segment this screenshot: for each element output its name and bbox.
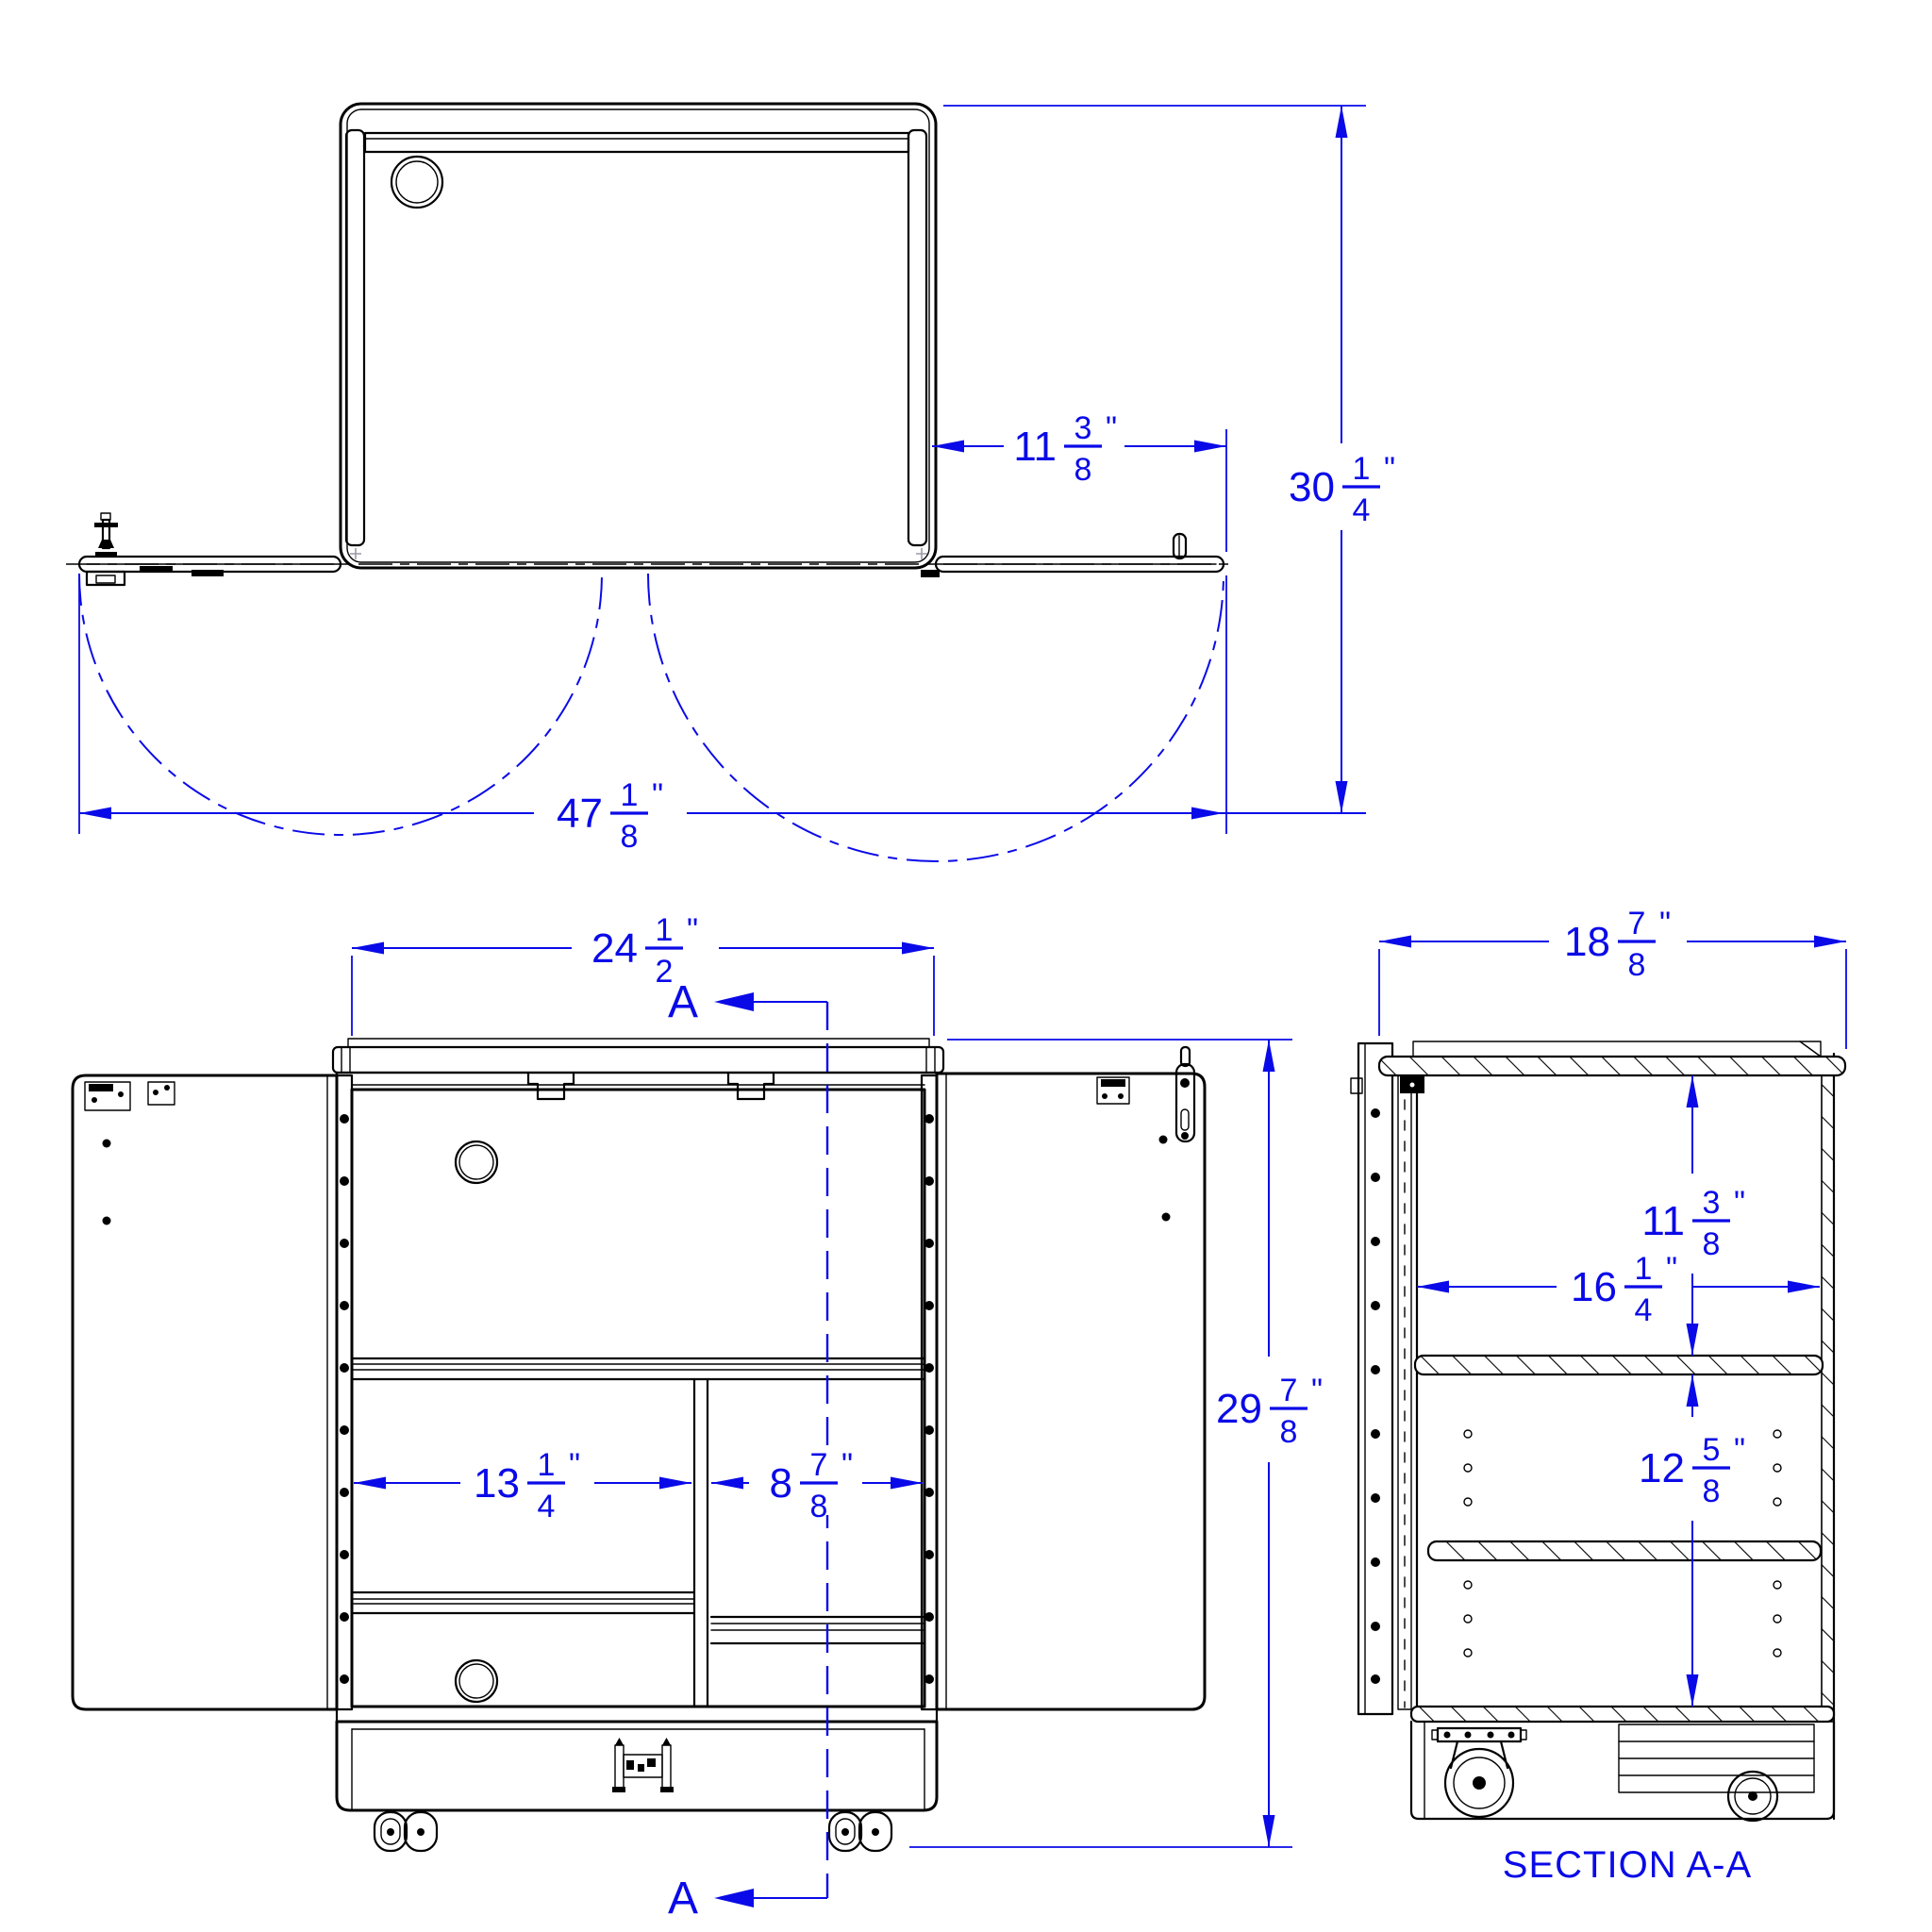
section-letter-bottom: A [668, 1874, 698, 1924]
svg-text:1: 1 [1635, 1251, 1653, 1287]
section-view: 18 7 8 " 11 3 8 " [1351, 906, 1846, 1886]
section-hinge-strip [1398, 1075, 1424, 1709]
svg-text:": " [687, 912, 698, 948]
front-right-door [937, 1047, 1205, 1709]
svg-text:8: 8 [770, 1460, 792, 1507]
svg-text:7: 7 [1280, 1373, 1298, 1408]
top-view-right-latch-pin [1174, 534, 1186, 558]
svg-text:47: 47 [557, 791, 603, 837]
dim-door-open-width: 11 3 8 " [932, 410, 1226, 834]
top-view-corner-marks [350, 548, 927, 559]
svg-text:13: 13 [474, 1460, 520, 1507]
svg-text:8: 8 [810, 1489, 828, 1524]
top-view-right-door-open [921, 557, 1224, 577]
section-lower-shelf [1428, 1541, 1821, 1560]
svg-text:": " [1311, 1373, 1323, 1408]
svg-text:1: 1 [538, 1447, 556, 1483]
dim-label-lower-compartment-height: 12 5 8 " [1632, 1432, 1755, 1509]
section-letter-top: A [668, 977, 698, 1027]
svg-text:": " [652, 777, 663, 813]
front-left-door [73, 1075, 337, 1709]
dim-right-compartment: 8 7 8 " [711, 1447, 923, 1524]
section-swivel-caster [1432, 1728, 1526, 1817]
front-left-caster [375, 1812, 437, 1851]
section-walls [1417, 1054, 1834, 1819]
dim-cabinet-height: 29 7 8 " [909, 1040, 1332, 1847]
svg-text:1: 1 [656, 912, 674, 948]
dim-label-cabinet-height: 29 7 8 " [1209, 1373, 1332, 1450]
dim-label-overall-depth: 30 1 4 " [1282, 451, 1405, 528]
svg-text:18: 18 [1564, 919, 1610, 965]
svg-text:30: 30 [1289, 464, 1335, 510]
svg-text:12: 12 [1639, 1445, 1685, 1491]
svg-text:11: 11 [1013, 424, 1057, 470]
dim-cabinet-depth: 18 7 8 " [1379, 906, 1846, 1049]
top-view-cabinet-outline [341, 104, 936, 568]
svg-text:": " [1659, 906, 1671, 941]
dim-label-door-open-width: 11 3 8 " [1004, 410, 1124, 488]
svg-text:": " [1734, 1185, 1745, 1221]
drawing-sheet: 11 3 8 " 30 1 4 " [0, 0, 1932, 1932]
svg-text:8: 8 [1703, 1226, 1721, 1262]
front-right-caster [829, 1812, 891, 1851]
svg-text:8: 8 [1280, 1414, 1298, 1450]
svg-text:8: 8 [1074, 452, 1092, 488]
svg-text:29: 29 [1216, 1386, 1262, 1432]
front-left-hinge-strip [337, 1075, 352, 1709]
front-base [337, 1722, 937, 1851]
svg-text:": " [1384, 451, 1395, 487]
dim-label-overall-width: 47 1 8 " [550, 777, 671, 855]
svg-text:1: 1 [621, 777, 639, 813]
front-cabinet-body [333, 1039, 943, 1722]
svg-text:8: 8 [1703, 1474, 1721, 1509]
section-base [1411, 1722, 1834, 1821]
svg-text:1: 1 [1353, 451, 1371, 487]
section-worktop [1379, 1041, 1845, 1075]
section-view-title: SECTION A-A [1503, 1844, 1752, 1886]
svg-text:4: 4 [538, 1489, 556, 1524]
dim-label-cabinet-depth: 18 7 8 " [1557, 906, 1678, 983]
svg-text:": " [1734, 1432, 1745, 1468]
svg-text:7: 7 [810, 1447, 828, 1483]
svg-text:": " [841, 1447, 853, 1483]
top-view-grommet-hole [391, 157, 442, 208]
svg-text:8: 8 [1628, 947, 1646, 983]
svg-text:11: 11 [1641, 1198, 1685, 1244]
svg-text:7: 7 [1628, 906, 1646, 941]
svg-text:4: 4 [1353, 492, 1371, 528]
top-view: 11 3 8 " 30 1 4 " [66, 104, 1405, 861]
dim-label-interior-depth: 16 1 4 " [1564, 1251, 1685, 1328]
svg-text:": " [1666, 1251, 1677, 1287]
dim-overall-width: 47 1 8 " [79, 577, 1366, 855]
section-rear-caster [1728, 1772, 1777, 1821]
svg-text:24: 24 [591, 925, 638, 972]
section-bottom-floor [1411, 1707, 1834, 1722]
section-louver-vent [1619, 1724, 1814, 1792]
svg-text:8: 8 [621, 819, 639, 855]
top-view-lid-band [365, 133, 908, 152]
top-view-left-latch-pin [87, 513, 173, 585]
top-view-right-rail [908, 130, 926, 545]
front-view: 24 1 2 " A A 13 1 [73, 912, 1332, 1924]
svg-text:": " [569, 1447, 580, 1483]
section-door-edge [1351, 1043, 1392, 1714]
section-mid-shelf [1415, 1356, 1823, 1374]
svg-text:3: 3 [1074, 410, 1092, 446]
technical-drawing-cad: 11 3 8 " 30 1 4 " [0, 0, 1932, 1932]
top-view-left-rail [346, 130, 364, 545]
dim-interior-depth: 16 1 4 " [1417, 1251, 1820, 1328]
svg-text:16: 16 [1571, 1264, 1617, 1310]
dim-label-left-compartment: 13 1 4 " [467, 1447, 588, 1524]
dim-cabinet-width: 24 1 2 " [352, 912, 934, 1036]
dim-label-right-compartment: 8 7 8 " [757, 1447, 862, 1524]
svg-text:3: 3 [1703, 1185, 1721, 1221]
svg-text:4: 4 [1635, 1292, 1653, 1328]
front-base-latch [612, 1738, 674, 1792]
svg-text:": " [1106, 410, 1117, 446]
top-view-left-door-open [79, 557, 341, 576]
svg-text:5: 5 [1703, 1432, 1721, 1468]
section-cut-line: A A [668, 977, 827, 1924]
dim-left-compartment: 13 1 4 " [354, 1447, 691, 1524]
